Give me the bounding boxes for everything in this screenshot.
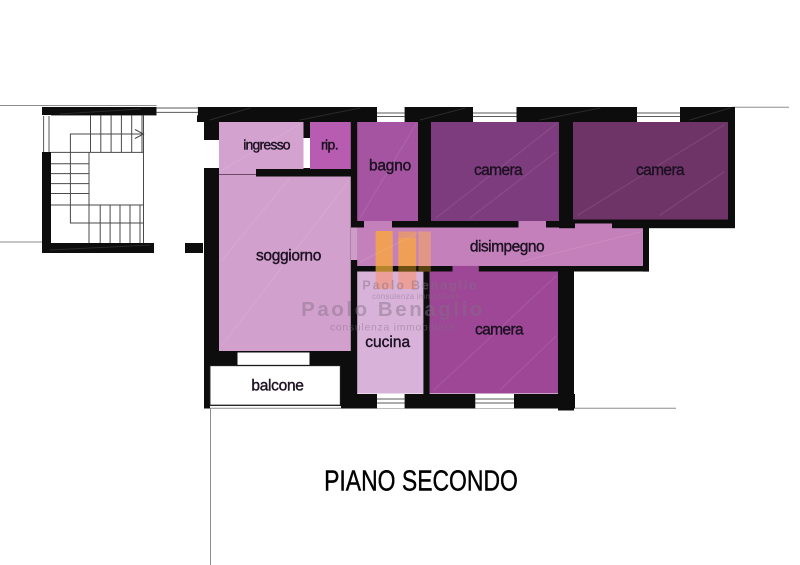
svg-text:camera: camera (475, 321, 524, 338)
svg-text:rip.: rip. (321, 137, 338, 153)
svg-text:ingresso: ingresso (243, 137, 291, 153)
svg-text:cucina: cucina (365, 334, 410, 351)
svg-text:disimpegno: disimpegno (470, 238, 544, 255)
svg-text:camera: camera (636, 162, 685, 179)
svg-text:Paolo Benaglio: Paolo Benaglio (301, 298, 485, 321)
svg-text:Paolo Benaglio: Paolo Benaglio (362, 279, 478, 293)
svg-text:PIANO SECONDO: PIANO SECONDO (324, 464, 518, 497)
svg-text:camera: camera (474, 162, 523, 179)
svg-text:bagno: bagno (369, 158, 411, 175)
svg-text:balcone: balcone (251, 377, 303, 394)
svg-text:soggiorno: soggiorno (256, 248, 321, 265)
svg-text:consulenza immobiliare: consulenza immobiliare (330, 322, 455, 333)
